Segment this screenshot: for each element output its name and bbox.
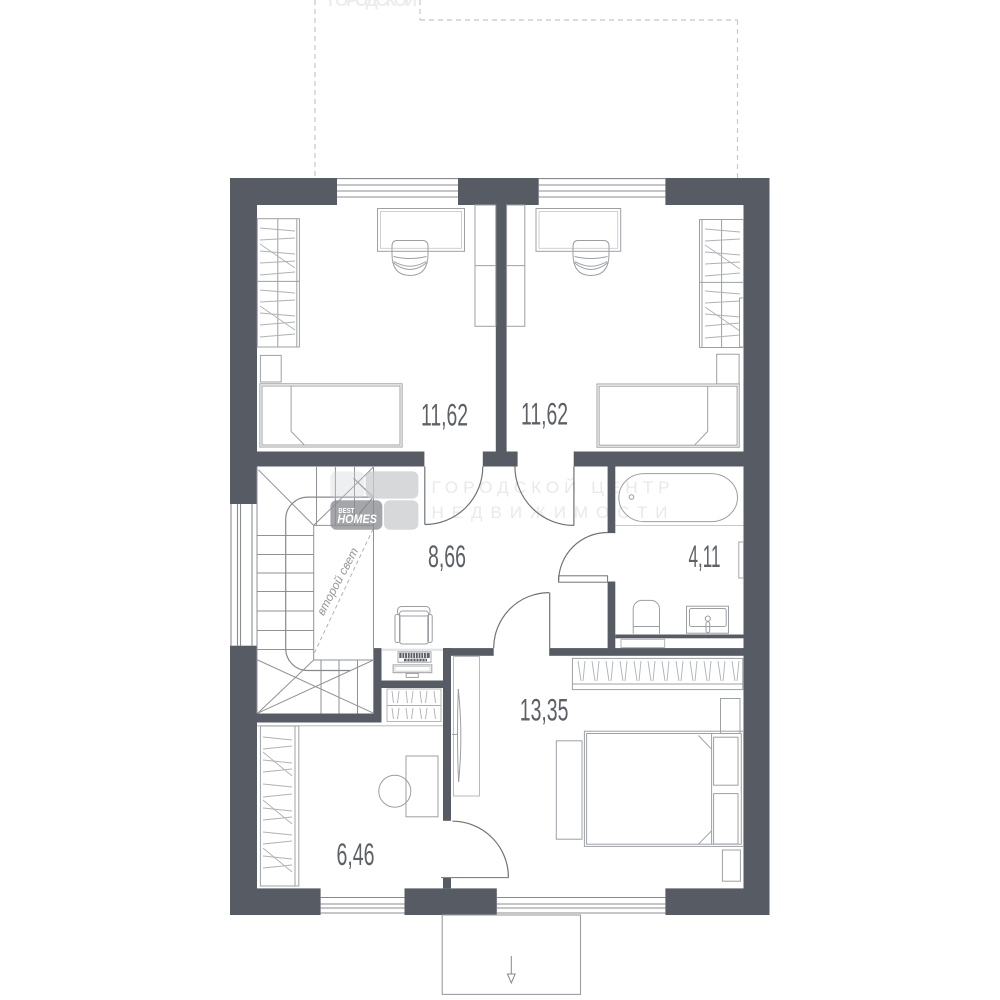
svg-text:ГОРОДСКОЙ: ГОРОДСКОЙ	[328, 0, 417, 10]
svg-text:8,66: 8,66	[428, 538, 466, 574]
svg-text:11,62: 11,62	[421, 397, 468, 433]
svg-text:13,35: 13,35	[520, 692, 569, 728]
svg-text:HOMES: HOMES	[337, 512, 377, 526]
svg-text:11,62: 11,62	[521, 396, 568, 432]
svg-text:4,11: 4,11	[689, 538, 721, 574]
svg-text:ГОРОДСКОЙ ЦЕНТР: ГОРОДСКОЙ ЦЕНТР	[432, 478, 670, 497]
svg-text:6,46: 6,46	[337, 836, 375, 872]
